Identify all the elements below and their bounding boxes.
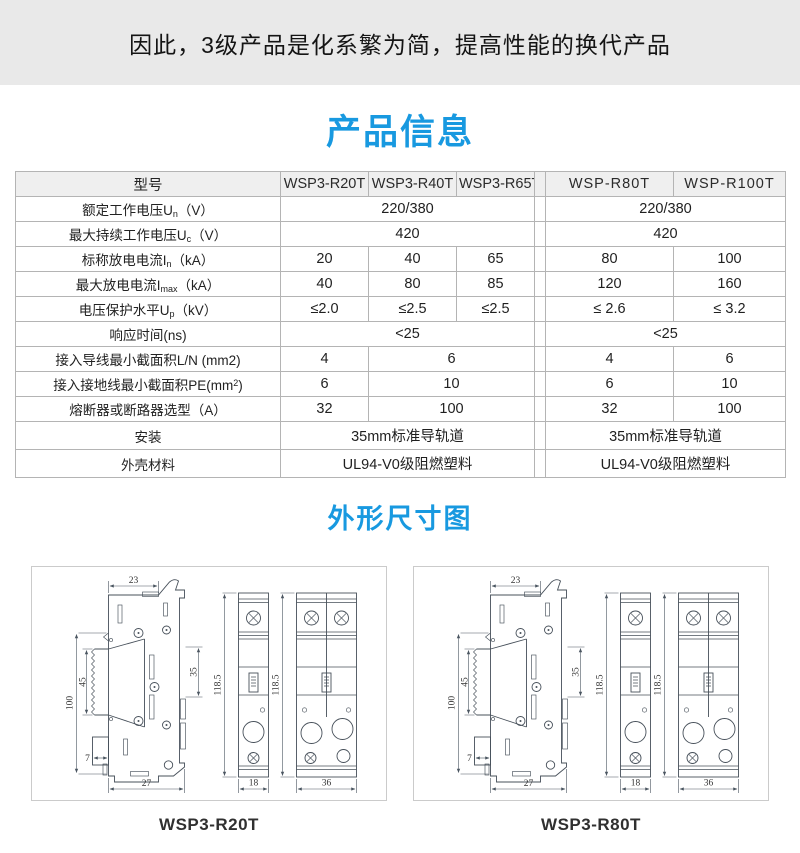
spec-cell: 420 [546,222,786,247]
dimension-drawing: 23 100 45 35 7 27 118.5 18 118.5 36 [414,567,768,800]
spec-cell: ≤2.5 [457,297,535,322]
spec-cell: 65 [457,247,535,272]
spec-cell: 4 [546,347,674,372]
spec-row-label: 电压保护水平Up（kV） [16,297,281,322]
table-gutter [535,347,546,372]
spec-row-label: 标称放电电流In（kA） [16,247,281,272]
spec-row-label: 熔断器或断路器选型（A） [16,397,281,422]
spec-cell: 6 [546,372,674,397]
spec-row-label: 接入导线最小截面积L/N (mm2) [16,347,281,372]
dim-narrow-width: 18 [249,779,259,789]
spec-cell: 32 [546,397,674,422]
spec-cell: 120 [546,272,674,297]
spec-cell: 35mm标准导轨道 [546,422,786,450]
spec-row: 安装 35mm标准导轨道 35mm标准导轨道 [16,422,786,450]
spec-row: 外壳材料 UL94-V0级阻燃塑料 UL94-V0级阻燃塑料 [16,450,786,478]
banner-text: 因此，3级产品是化系繁为简，提高性能的换代产品 [129,26,671,60]
table-gutter [535,297,546,322]
spec-header-row: 型号 WSP3-R20T WSP3-R40T WSP3-R65T WSP-R80… [16,172,786,197]
spec-cell: 100 [674,247,786,272]
dim-front-height: 118.5 [214,674,224,695]
spec-row-label: 最大放电电流Imax（kA） [16,272,281,297]
spec-cell: ≤2.5 [369,297,457,322]
spec-cell: 40 [281,272,369,297]
drawing-label-wsp3-r20t: WSP3-R20T [31,815,387,835]
spec-cell: ≤ 2.6 [546,297,674,322]
spec-cell: 160 [674,272,786,297]
spec-cell: <25 [281,322,535,347]
spec-row-label: 最大持续工作电压Uc（V） [16,222,281,247]
table-gutter [535,450,546,478]
dim-narrow-width: 18 [631,779,641,789]
product-info-title: 产品信息 [0,111,800,155]
spec-cell: 420 [281,222,535,247]
model-header: WSP3-R65T [457,172,535,197]
spec-cell: 85 [457,272,535,297]
dimensions-title: 外形尺寸图 [0,502,800,536]
spec-table: 型号 WSP3-R20T WSP3-R40T WSP3-R65T WSP-R80… [15,171,786,478]
drawing-labels: WSP3-R20T WSP3-R80T [31,815,769,835]
drawing-panel-wsp3-r20t: 23 100 45 35 7 27 118.5 18 118.5 36 [31,566,387,801]
spec-cell: 10 [674,372,786,397]
spec-row-label: 接入接地线最小截面积PE(mm2) [16,372,281,397]
spec-cell: 6 [674,347,786,372]
spec-cell: <25 [546,322,786,347]
drawing-panel-wsp3-r80t: 23 100 45 35 7 27 118.5 18 118.5 36 [413,566,769,801]
spec-row: 接入接地线最小截面积PE(mm2) 6 10 6 10 [16,372,786,397]
spec-cell: 4 [281,347,369,372]
top-banner: 因此，3级产品是化系繁为简，提高性能的换代产品 [0,0,800,85]
dim-outer-left: 100 [448,696,458,711]
drawing-label-wsp3-r80t: WSP3-R80T [413,815,769,835]
drawing-panels: 23 100 45 35 7 27 118.5 18 118.5 36 23 1… [31,566,769,801]
dim-foot: 7 [85,754,90,764]
dim-right: 35 [572,667,582,677]
spec-row: 熔断器或断路器选型（A） 32 100 32 100 [16,397,786,422]
dim-outer-left: 100 [66,696,76,711]
spec-cell: 100 [369,397,535,422]
table-gutter [535,172,546,197]
spec-cell: 32 [281,397,369,422]
table-gutter [535,272,546,297]
spec-row-label: 额定工作电压Un（V） [16,197,281,222]
col-header-model: 型号 [16,172,281,197]
dim-right: 35 [190,667,200,677]
spec-cell: 220/380 [546,197,786,222]
model-header: WSP3-R40T [369,172,457,197]
spec-cell: 10 [369,372,535,397]
table-gutter [535,197,546,222]
dim-wide-width: 36 [704,779,714,789]
table-gutter [535,322,546,347]
dim-inner-left: 45 [79,677,89,687]
dim-top: 23 [129,576,139,586]
spec-cell: 220/380 [281,197,535,222]
spec-table-wrap: 型号 WSP3-R20T WSP3-R40T WSP3-R65T WSP-R80… [15,171,785,478]
spec-row: 电压保护水平Up（kV） ≤2.0 ≤2.5 ≤2.5 ≤ 2.6 ≤ 3.2 [16,297,786,322]
spec-cell: 35mm标准导轨道 [281,422,535,450]
table-gutter [535,372,546,397]
spec-cell: ≤ 3.2 [674,297,786,322]
dim-bottom: 27 [524,779,534,789]
spec-cell: 20 [281,247,369,272]
dim-front-height: 118.5 [596,674,606,695]
table-gutter [535,397,546,422]
spec-row: 标称放电电流In（kA） 20 40 65 80 100 [16,247,786,272]
model-header: WSP-R80T [546,172,674,197]
dimension-drawing: 23 100 45 35 7 27 118.5 18 118.5 36 [32,567,386,800]
spec-cell: 6 [369,347,535,372]
table-gutter [535,422,546,450]
spec-cell: UL94-V0级阻燃塑料 [546,450,786,478]
spec-cell: 100 [674,397,786,422]
model-header: WSP3-R20T [281,172,369,197]
spec-row: 最大持续工作电压Uc（V） 420 420 [16,222,786,247]
dim-inner-left: 45 [461,677,471,687]
spec-cell: 6 [281,372,369,397]
spec-row: 接入导线最小截面积L/N (mm2) 4 6 4 6 [16,347,786,372]
dim-wide-width: 36 [322,779,332,789]
spec-row-label: 响应时间(ns) [16,322,281,347]
spec-row: 额定工作电压Un（V） 220/380 220/380 [16,197,786,222]
dim-foot: 7 [467,754,472,764]
dim-bottom: 27 [142,779,152,789]
model-header: WSP-R100T [674,172,786,197]
spec-cell: UL94-V0级阻燃塑料 [281,450,535,478]
dim-front-height: 118.5 [272,674,282,695]
spec-row: 最大放电电流Imax（kA） 40 80 85 120 160 [16,272,786,297]
dim-front-height: 118.5 [654,674,664,695]
spec-row-label: 外壳材料 [16,450,281,478]
spec-cell: 40 [369,247,457,272]
spec-cell: ≤2.0 [281,297,369,322]
dim-top: 23 [511,576,521,586]
spec-row: 响应时间(ns) <25 <25 [16,322,786,347]
spec-row-label: 安装 [16,422,281,450]
spec-cell: 80 [369,272,457,297]
table-gutter [535,247,546,272]
spec-cell: 80 [546,247,674,272]
table-gutter [535,222,546,247]
